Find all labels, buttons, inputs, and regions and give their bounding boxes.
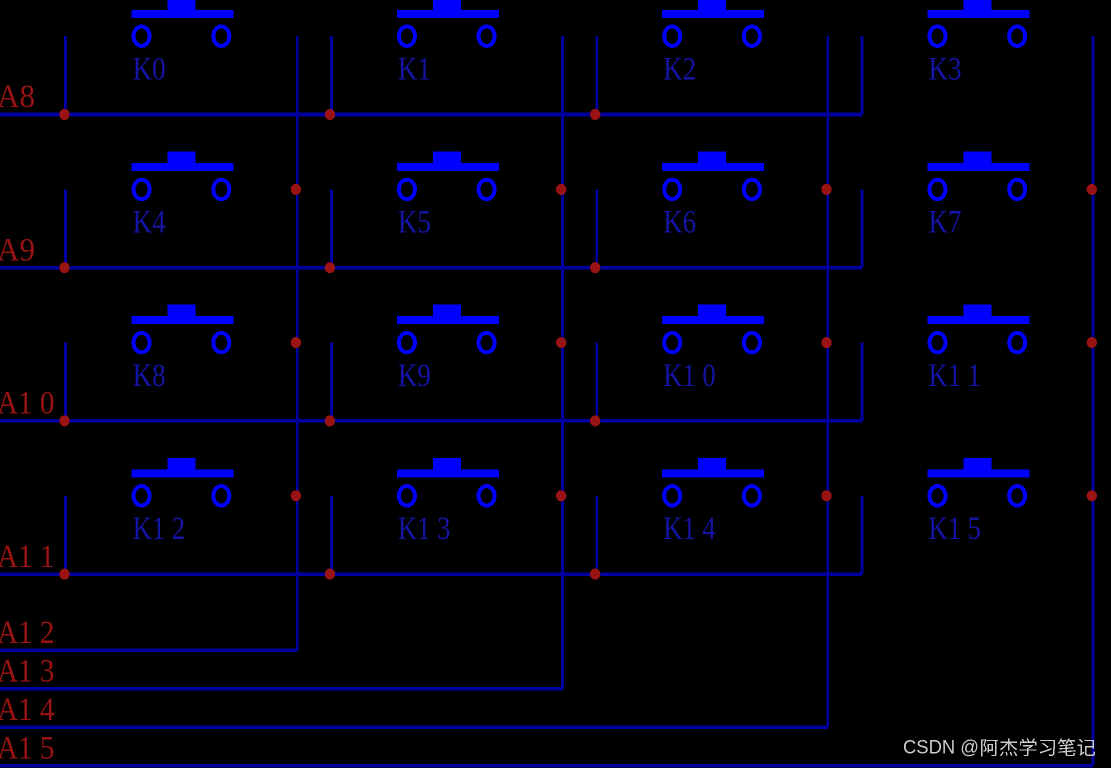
svg-text:K1 2: K1 2: [133, 511, 186, 547]
svg-text:A1 2: A1 2: [0, 615, 55, 651]
svg-text:A1 4: A1 4: [0, 692, 55, 728]
svg-text:K1 5: K1 5: [929, 511, 982, 547]
svg-text:K0: K0: [133, 51, 166, 87]
svg-text:K7: K7: [929, 205, 962, 241]
svg-text:A1 1: A1 1: [0, 539, 55, 575]
svg-text:K1 1: K1 1: [929, 358, 982, 394]
svg-text:A9: A9: [0, 232, 35, 268]
svg-text:K1 0: K1 0: [663, 358, 716, 394]
svg-text:K3: K3: [929, 51, 962, 87]
svg-text:K5: K5: [398, 205, 431, 241]
svg-text:A1 0: A1 0: [0, 386, 55, 422]
svg-text:K1: K1: [398, 51, 431, 87]
svg-text:K8: K8: [133, 358, 166, 394]
svg-text:A8: A8: [0, 79, 35, 115]
svg-text:K9: K9: [398, 358, 431, 394]
svg-text:K4: K4: [133, 205, 166, 241]
svg-text:CSDN @: CSDN @: [903, 738, 979, 759]
svg-text:A1 5: A1 5: [0, 730, 55, 766]
svg-text:A1 3: A1 3: [0, 654, 55, 690]
svg-text:K1 3: K1 3: [398, 511, 451, 547]
svg-text:K1 4: K1 4: [663, 511, 716, 547]
svg-text:K6: K6: [663, 205, 696, 241]
svg-text:K2: K2: [663, 51, 696, 87]
